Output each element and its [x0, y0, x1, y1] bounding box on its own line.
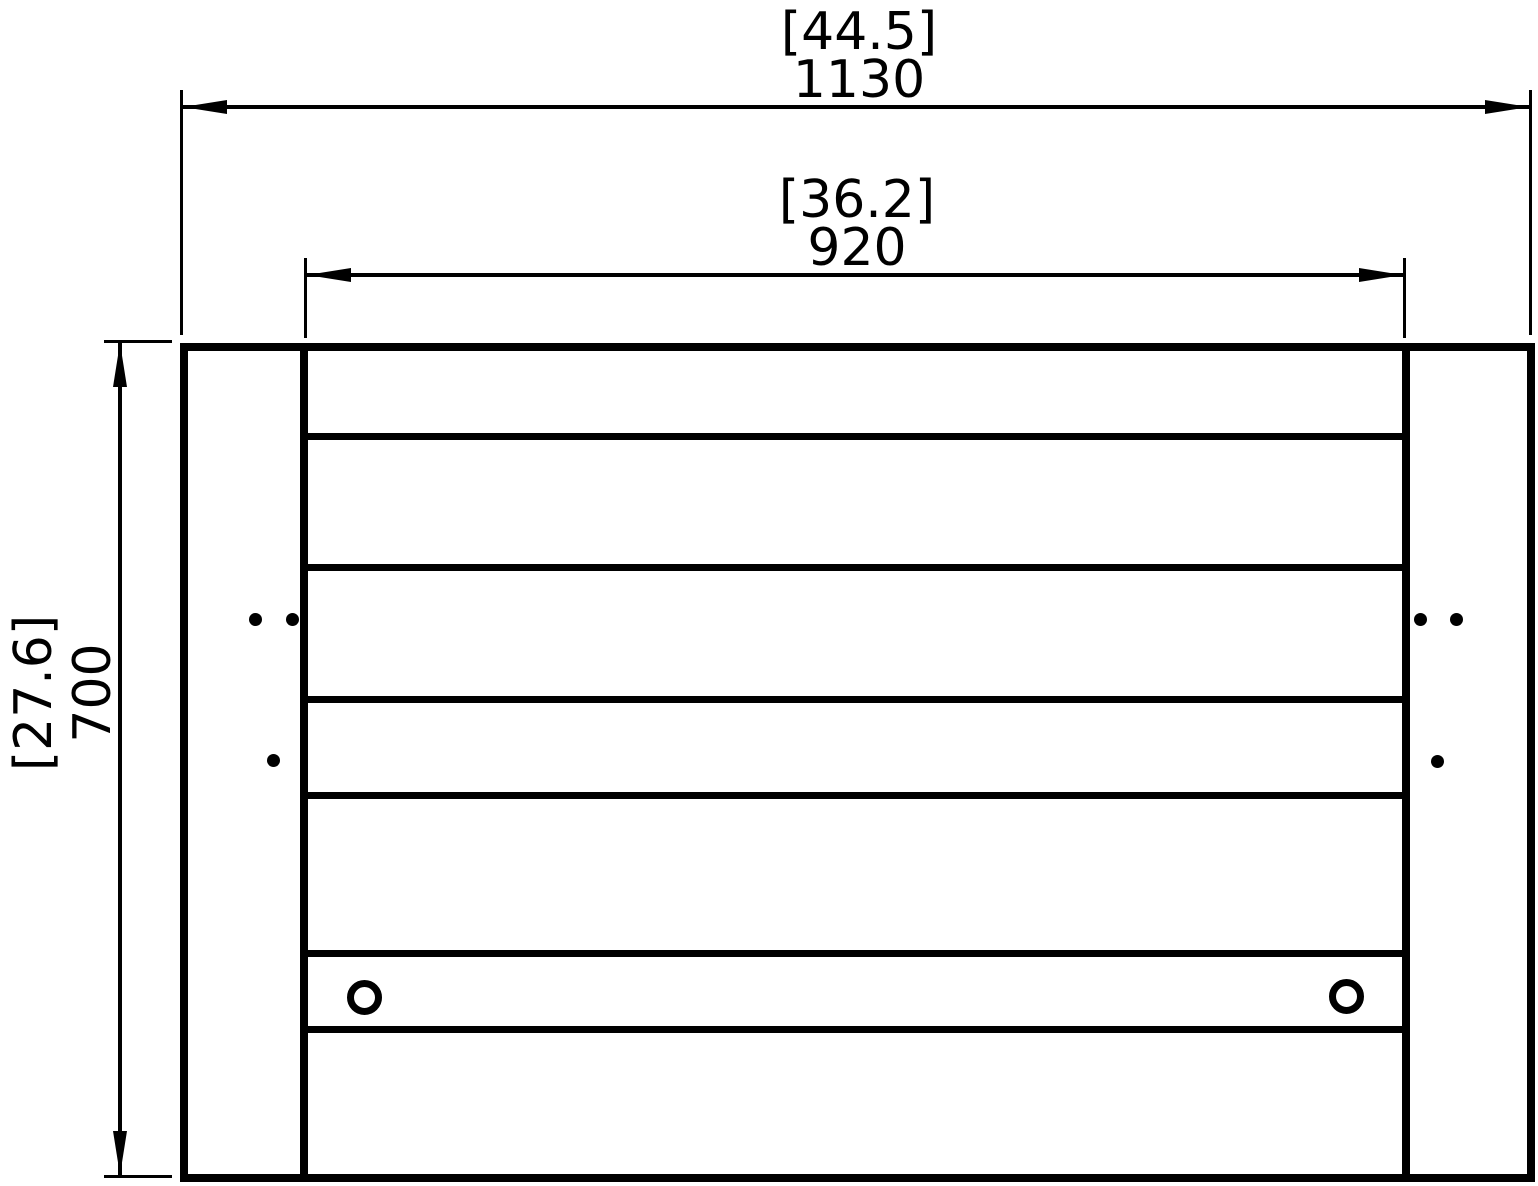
left-hole-circle — [347, 980, 382, 1015]
dim-inner-width-arrow-left — [307, 268, 351, 282]
left-stile-line — [300, 351, 308, 1174]
dim-height-arrow-bottom — [113, 1131, 127, 1175]
dim-overall-width-arrow-right — [1485, 100, 1529, 114]
dim-inner-width-arrow-right — [1359, 268, 1403, 282]
right-stile-line — [1402, 351, 1410, 1174]
dim-height-arrow-top — [113, 343, 127, 387]
dim-overall-width-arrow-left — [183, 100, 227, 114]
dim-inner-width-label-mm: 920 — [807, 222, 906, 274]
technical-drawing-canvas: [44.5] 1130 [36.2] 920 [27.6] 700 — [0, 0, 1538, 1186]
left-dot-pair-outer — [249, 613, 262, 626]
slat-line-2 — [308, 564, 1402, 571]
right-dot-pair-outer — [1450, 613, 1463, 626]
dim-height-label-mm: 700 — [67, 643, 119, 742]
right-dot-single — [1431, 755, 1444, 768]
left-dot-single — [267, 754, 280, 767]
left-dot-pair-inner — [286, 613, 299, 626]
outer-frame — [180, 343, 1535, 1182]
slat-line-4 — [308, 792, 1402, 799]
slat-line-1 — [308, 433, 1402, 440]
dim-height-label-inches: [27.6] — [8, 615, 60, 771]
right-dot-pair-inner — [1414, 613, 1427, 626]
right-hole-circle — [1329, 979, 1364, 1014]
slat-line-6 — [308, 1026, 1402, 1033]
slat-line-5 — [308, 950, 1402, 957]
dim-overall-width-label-mm: 1130 — [793, 54, 925, 106]
dim-inner-width-ext-right — [1403, 258, 1406, 338]
slat-line-3 — [308, 696, 1402, 703]
dim-overall-width-ext-left — [180, 90, 183, 335]
dim-height-line — [118, 342, 122, 1176]
dim-height-ext-bottom — [104, 1175, 172, 1178]
dim-overall-width-ext-right — [1529, 90, 1532, 335]
